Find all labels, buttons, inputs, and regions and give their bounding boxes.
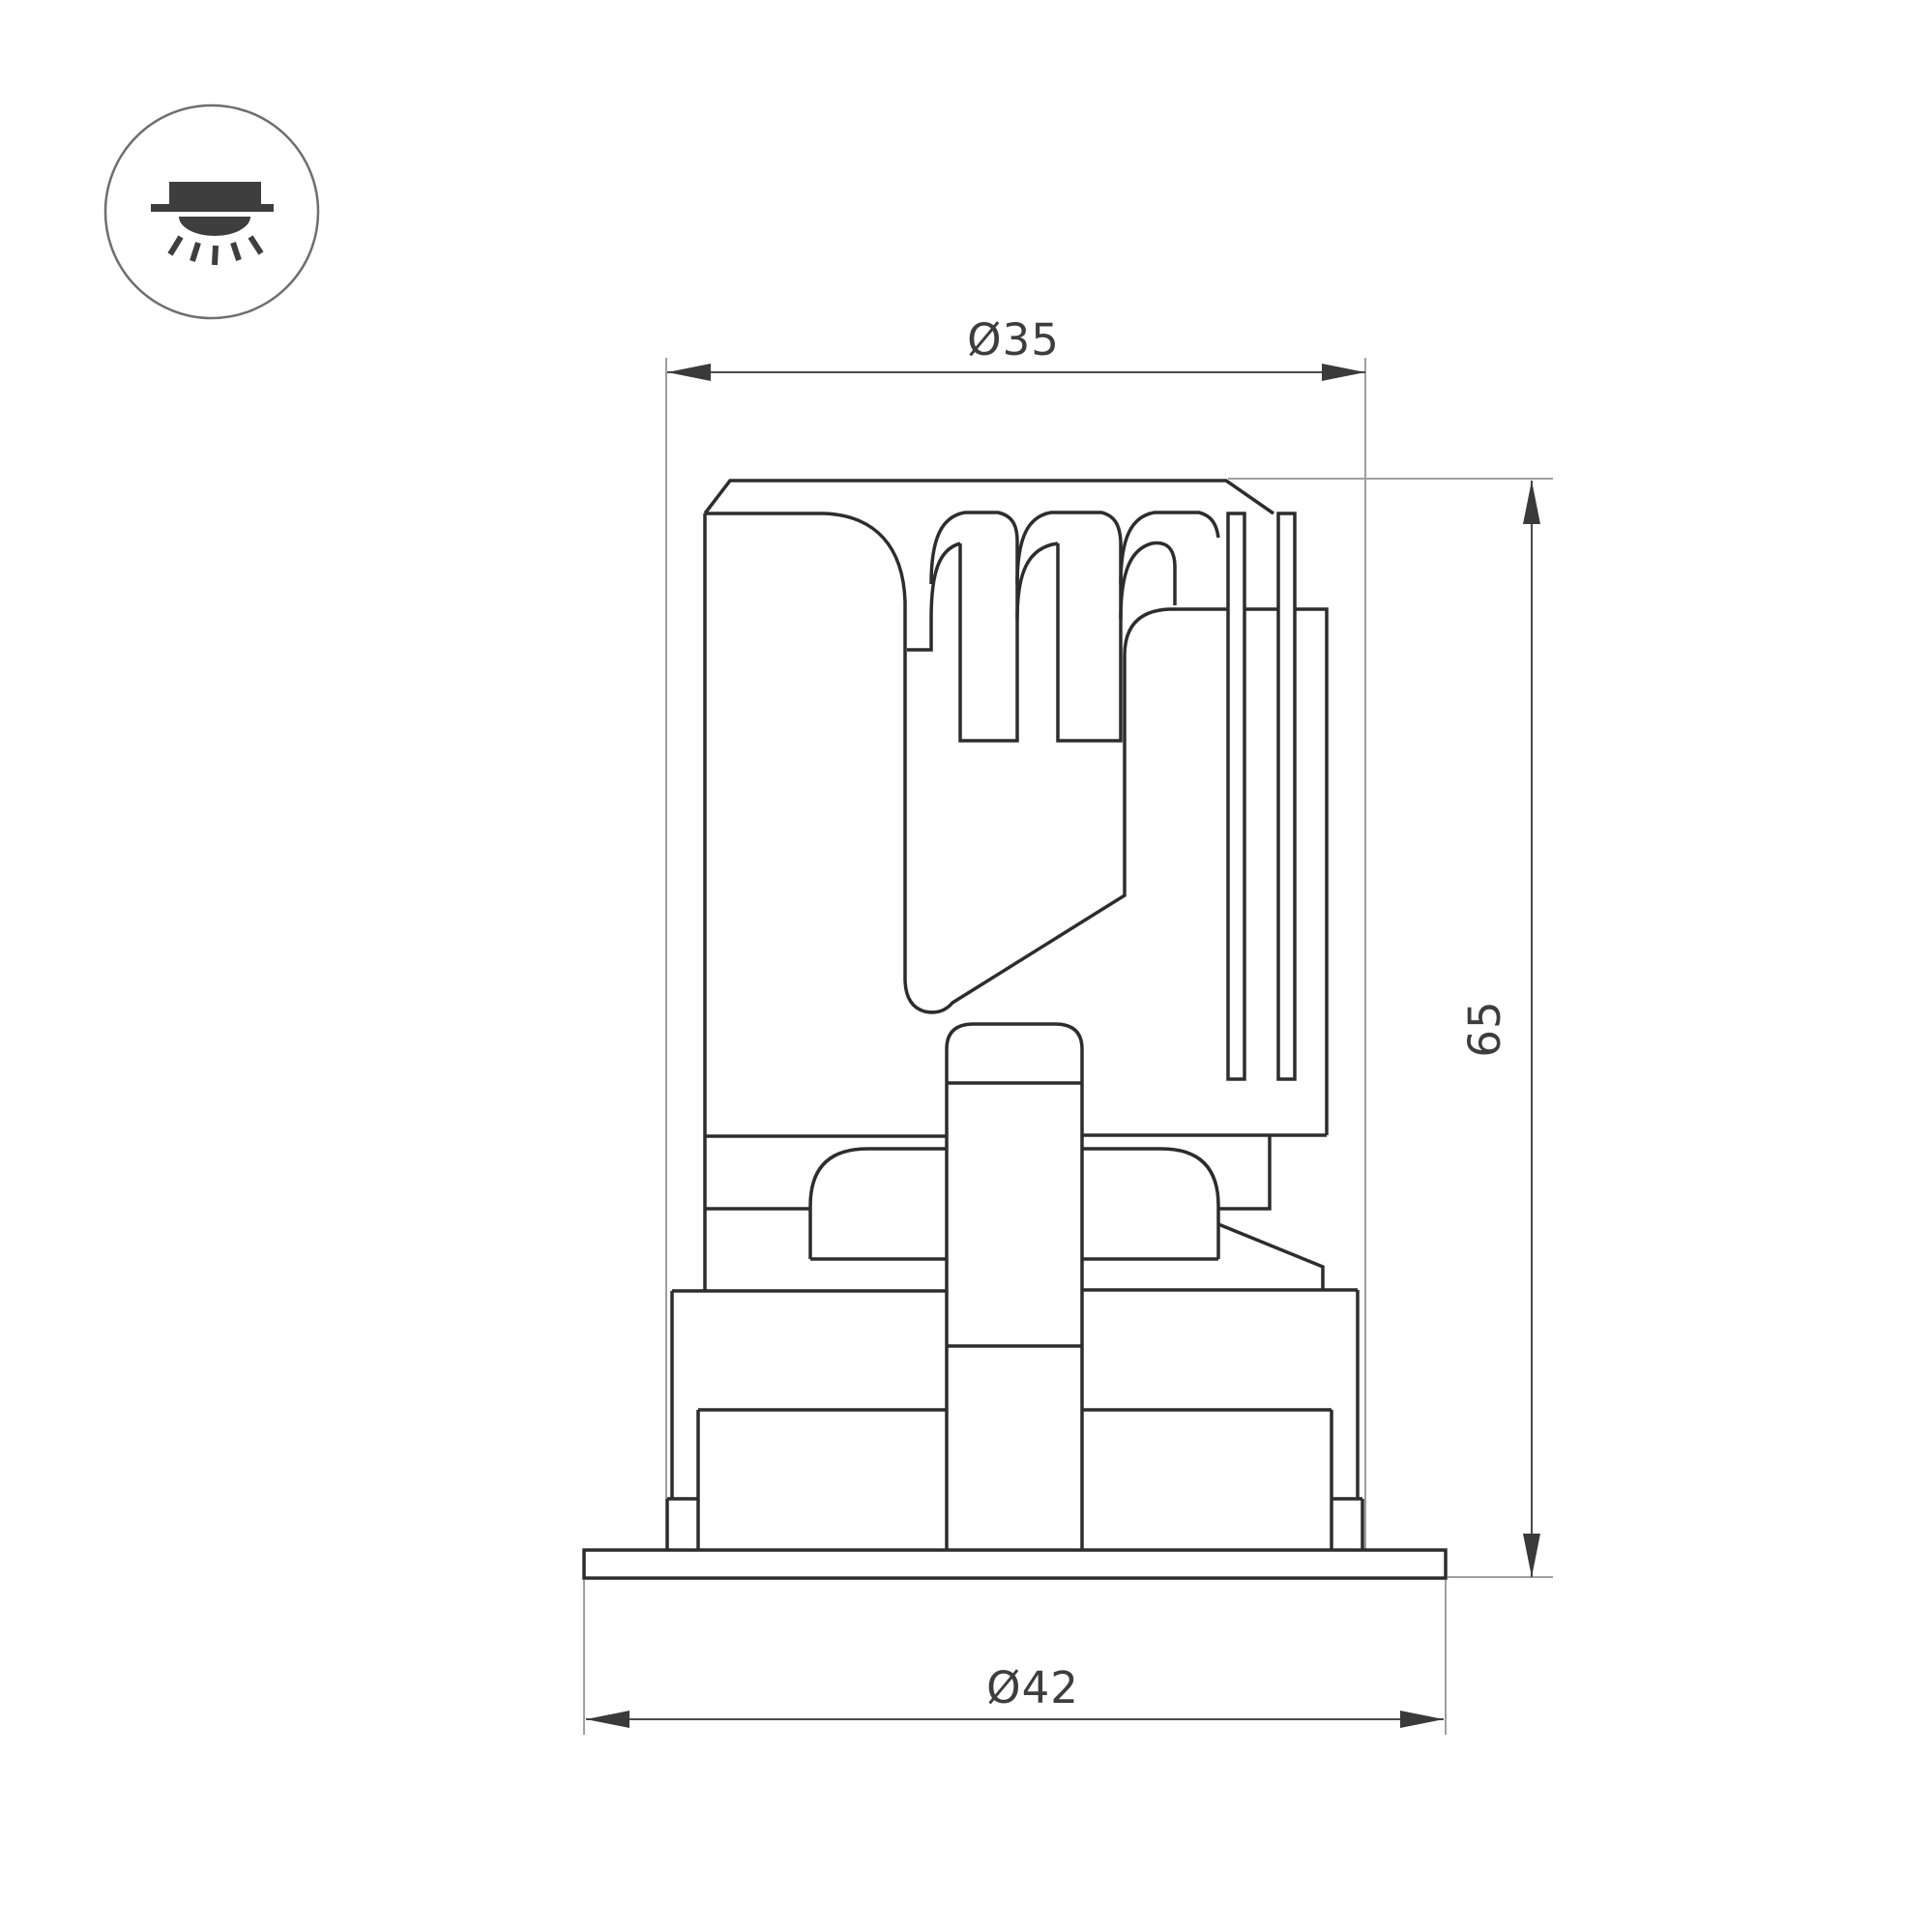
arrow-up-icon <box>1523 481 1540 524</box>
fin-1 <box>907 619 931 650</box>
dimension-height: 65 <box>1459 481 1540 1577</box>
fin-curve-1-high <box>931 512 1017 584</box>
arrow-down-icon <box>1523 1534 1540 1577</box>
contact-pin-right <box>1278 513 1295 1079</box>
central-stem <box>947 1024 1082 1550</box>
stem-cap <box>947 1024 1082 1083</box>
lamp-body <box>169 182 261 205</box>
dim-label-height: 65 <box>1459 1000 1510 1057</box>
right-shoulder <box>1082 1149 1218 1259</box>
arrow-left-icon <box>586 1711 629 1728</box>
fin-3 <box>1058 542 1121 741</box>
dimension-flange-diameter: Ø42 <box>586 1662 1444 1728</box>
inner-box-left <box>698 1410 947 1550</box>
fixture-drawing <box>584 481 1446 1578</box>
dim-label-top-diameter: Ø35 <box>967 314 1060 366</box>
top-cap-bevel <box>705 481 1273 513</box>
dim-label-flange-diameter: Ø42 <box>986 1662 1079 1713</box>
foot-left <box>667 1499 698 1550</box>
arrow-right-icon <box>1322 364 1365 381</box>
right-hanging-block <box>1218 1135 1270 1209</box>
fin-curve-2-low <box>1017 543 1058 619</box>
extension-lines <box>584 358 1553 1735</box>
arrow-left-icon <box>667 364 711 381</box>
arrow-right-icon <box>1400 1711 1444 1728</box>
left-shoulder <box>810 1149 947 1259</box>
stem-sides <box>947 1083 1082 1550</box>
fin-curve-1-low <box>931 543 960 619</box>
fin-curve-3-low <box>1121 542 1175 619</box>
trim-flange <box>584 1550 1446 1578</box>
inner-box-right <box>1082 1410 1332 1550</box>
contact-pin-left <box>1228 513 1244 1079</box>
foot-right <box>1332 1499 1362 1550</box>
recessed-downlight-icon <box>105 105 318 318</box>
ceiling-flange <box>151 204 274 212</box>
technical-drawing-page: Ø35 65 Ø42 <box>0 0 1932 1932</box>
heatsink-fins <box>907 512 1218 741</box>
dimension-top-diameter: Ø35 <box>667 314 1365 381</box>
drawing-canvas: Ø35 65 Ø42 <box>0 0 1932 1932</box>
right-diagonal-clip <box>1218 1224 1323 1290</box>
fin-2 <box>960 542 1017 741</box>
fin-curve-2-high <box>1017 512 1121 584</box>
